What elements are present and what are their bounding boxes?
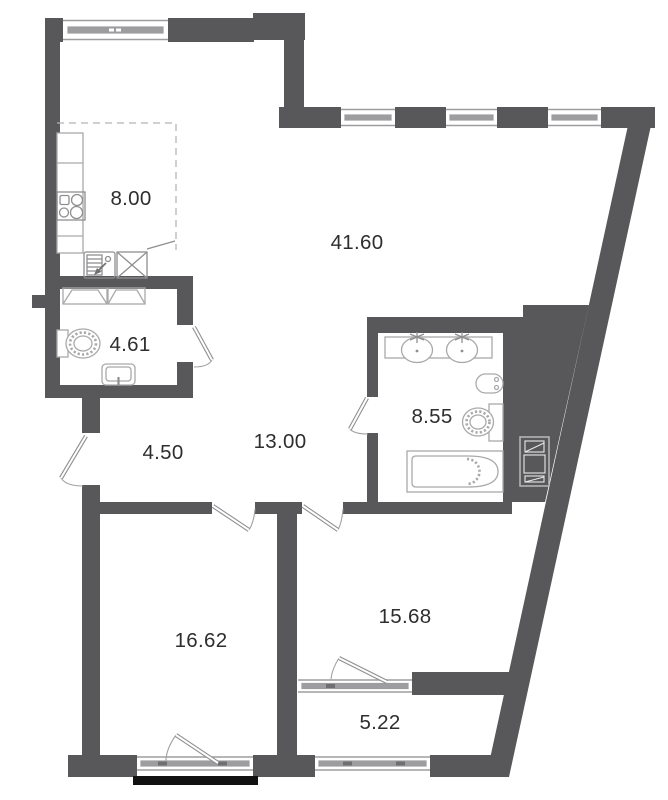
room-area-label-wc: 4.61 xyxy=(109,333,150,356)
window-handle xyxy=(158,762,167,766)
wall xyxy=(395,107,446,128)
wall xyxy=(279,107,341,128)
wall xyxy=(45,18,63,42)
wall xyxy=(68,755,137,777)
room-area-label-loggia: 5.22 xyxy=(359,711,400,734)
wall xyxy=(367,433,378,502)
wall xyxy=(45,385,193,398)
room-area-label-bathroom: 8.55 xyxy=(411,405,452,428)
window-handle xyxy=(109,29,114,32)
balcony-railing xyxy=(133,776,258,785)
room-area-label-kitchen: 8.00 xyxy=(110,187,151,210)
cabinet-flap-line xyxy=(147,241,175,249)
window-handle xyxy=(326,684,335,688)
door-bathroom xyxy=(350,398,368,434)
wall xyxy=(168,18,254,42)
floor-plan-drawing: 8.00 41.60 4.61 8.55 4.50 13.00 16.62 15… xyxy=(0,0,668,800)
wall xyxy=(367,333,378,397)
ventilation-shaft-icon xyxy=(520,437,549,486)
window-handle xyxy=(218,762,227,766)
kitchen-sink-icon xyxy=(117,252,147,278)
dishwasher-icon xyxy=(84,252,115,278)
room-area-label-entrance-hall: 4.50 xyxy=(142,441,183,464)
balcony-block-bedroom-1 xyxy=(137,757,253,770)
door-bedroom-2 xyxy=(303,506,343,530)
window-loggia-bottom xyxy=(315,757,430,770)
wall xyxy=(100,502,212,514)
wall xyxy=(497,107,548,128)
room-area-label-bedroom-1: 16.62 xyxy=(175,629,228,652)
wall xyxy=(367,317,523,333)
room-area-label-corridor: 13.00 xyxy=(254,430,307,453)
room-area-label-bedroom-2: 15.68 xyxy=(379,605,432,628)
wall xyxy=(277,514,297,757)
door-entrance xyxy=(61,436,86,486)
window-living-3 xyxy=(548,110,601,126)
bathtub-icon xyxy=(407,451,503,492)
door-balcony-bedroom-1 xyxy=(166,735,218,763)
wall-pilaster xyxy=(32,295,46,308)
door-bedroom-1 xyxy=(213,506,255,530)
window-handle xyxy=(396,762,405,766)
wall xyxy=(82,485,100,757)
wall xyxy=(430,755,509,777)
wall xyxy=(177,289,193,325)
window-handle xyxy=(343,762,352,766)
window-living-1 xyxy=(341,110,395,126)
wall xyxy=(82,398,100,433)
wall xyxy=(412,672,509,695)
door-wc xyxy=(194,327,212,367)
wall xyxy=(253,755,315,777)
window-living-2 xyxy=(446,110,497,126)
bidet-icon xyxy=(476,374,503,393)
room-area-label-living-room: 41.60 xyxy=(331,231,384,254)
kitchen-counter xyxy=(57,133,83,253)
toilet-icon xyxy=(463,404,504,441)
wall xyxy=(367,502,512,514)
wall xyxy=(284,40,304,107)
wall xyxy=(255,502,302,514)
floor-plan: 8.00 41.60 4.61 8.55 4.50 13.00 16.62 15… xyxy=(0,0,668,800)
toilet-icon xyxy=(57,329,100,358)
wardrobe-icon xyxy=(63,288,145,304)
washbasin-icon xyxy=(102,364,135,386)
wall xyxy=(253,13,305,40)
window-kitchen xyxy=(63,21,168,40)
door-loggia xyxy=(331,658,387,682)
window-handle xyxy=(116,29,121,32)
wall xyxy=(177,362,193,385)
balcony-block-bedroom-2 xyxy=(298,680,412,692)
